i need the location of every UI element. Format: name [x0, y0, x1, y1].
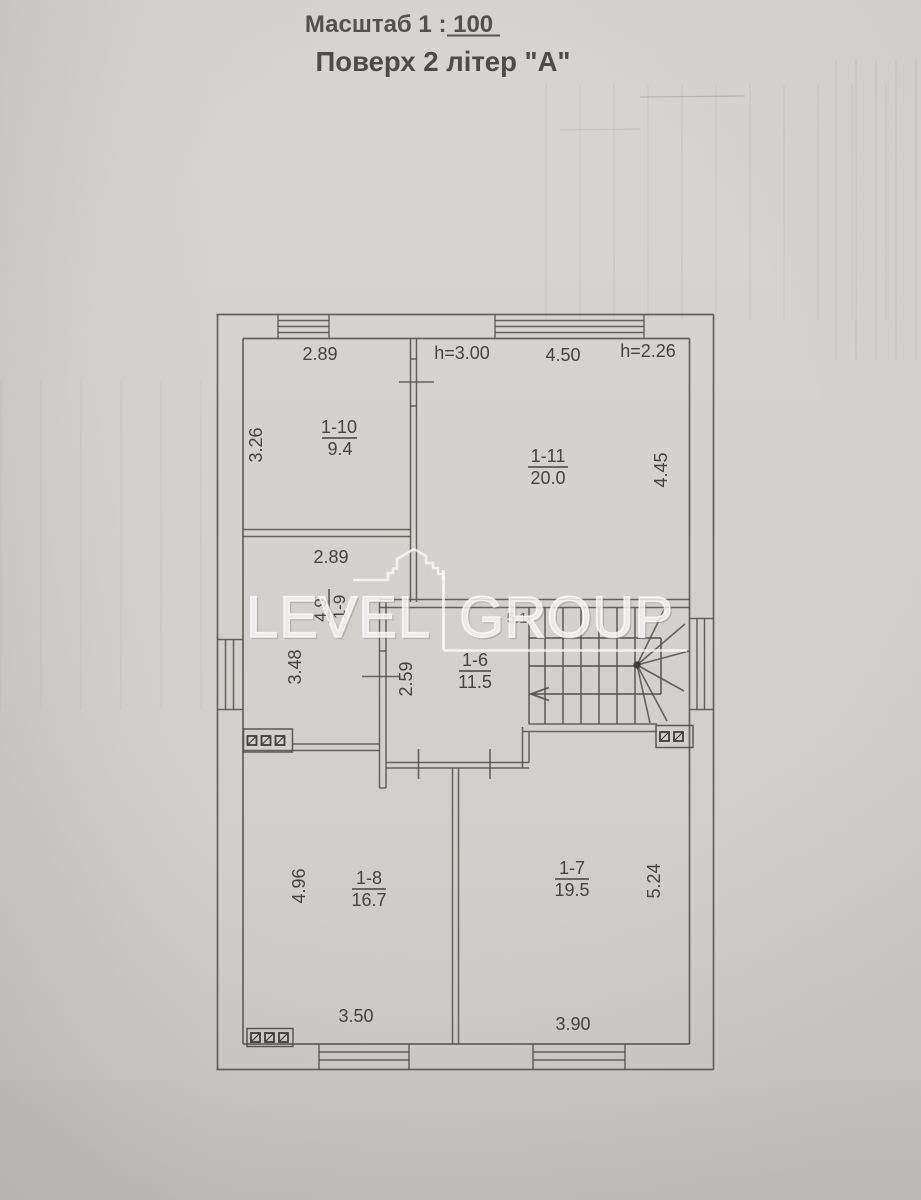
svg-text:4.96: 4.96 — [289, 868, 309, 903]
svg-text:5.1: 5.1 — [507, 610, 528, 627]
svg-text:2.59: 2.59 — [396, 661, 416, 696]
svg-text:2.89: 2.89 — [302, 344, 337, 364]
svg-text:1-11: 1-11 — [531, 446, 566, 466]
svg-text:3.48: 3.48 — [285, 649, 305, 684]
svg-text:GROUP: GROUP — [461, 587, 675, 652]
svg-text:11.5: 11.5 — [458, 672, 492, 692]
svg-text:h=3.00: h=3.00 — [434, 343, 490, 363]
svg-text:h=2.26: h=2.26 — [620, 341, 676, 361]
svg-text:9.4: 9.4 — [327, 439, 352, 459]
svg-text:4.50: 4.50 — [545, 345, 580, 365]
svg-text:Поверх 2 літер "А": Поверх 2 літер "А" — [316, 46, 571, 77]
svg-text:GROUP: GROUP — [459, 585, 673, 650]
svg-text:1-8: 1-8 — [356, 868, 382, 888]
svg-text:20.0: 20.0 — [530, 468, 565, 488]
svg-text:1-10: 1-10 — [321, 417, 357, 437]
svg-text:LEVEL: LEVEL — [248, 587, 432, 652]
svg-text:16.7: 16.7 — [351, 890, 386, 910]
svg-text:5.24: 5.24 — [644, 863, 664, 898]
svg-text:1-6: 1-6 — [462, 650, 488, 670]
svg-text:4.9: 4.9 — [311, 598, 330, 622]
svg-text:2.89: 2.89 — [313, 547, 348, 567]
svg-text:4.45: 4.45 — [651, 452, 671, 487]
svg-text:3.90: 3.90 — [555, 1014, 590, 1034]
svg-text:1-7: 1-7 — [559, 858, 585, 878]
svg-text:1-9: 1-9 — [330, 595, 349, 620]
svg-text:LEVEL: LEVEL — [246, 585, 430, 650]
svg-text:3.50: 3.50 — [338, 1006, 373, 1026]
svg-text:Масштаб 1 : 100: Масштаб 1 : 100 — [305, 11, 493, 38]
svg-text:3.26: 3.26 — [246, 427, 266, 462]
svg-text:19.5: 19.5 — [554, 880, 589, 900]
